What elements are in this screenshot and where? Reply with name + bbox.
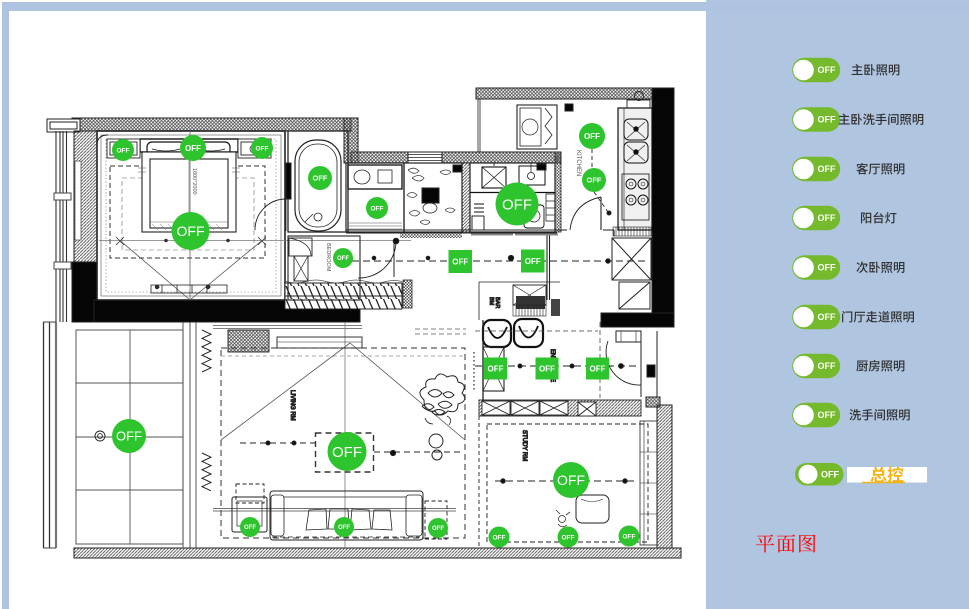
svg-text:OFF: OFF [562, 534, 575, 541]
svg-text:OFF: OFF [818, 361, 836, 371]
svg-text:OFF: OFF [539, 364, 555, 373]
svg-text:STUDY RM: STUDY RM [521, 430, 527, 461]
svg-text:OFF: OFF [177, 223, 205, 239]
svg-text:OFF: OFF [525, 257, 541, 266]
svg-text:OFF: OFF [818, 410, 836, 420]
svg-text:OFF: OFF [590, 364, 606, 373]
svg-text:OFF: OFF [244, 525, 256, 531]
svg-text:OFF: OFF [371, 205, 384, 212]
svg-text:OFF: OFF [818, 263, 836, 273]
svg-text:OFF: OFF [432, 526, 444, 532]
svg-text:OFF: OFF [557, 472, 585, 488]
svg-text:OFF: OFF [117, 147, 130, 154]
svg-text:BEDROOM: BEDROOM [325, 243, 331, 272]
svg-text:OFF: OFF [338, 525, 350, 531]
svg-text:OFF: OFF [587, 176, 602, 185]
svg-text:OFF: OFF [818, 65, 836, 75]
svg-text:OFF: OFF [818, 164, 836, 174]
svg-text:OFF: OFF [256, 145, 269, 152]
svg-text:OFF: OFF [818, 312, 836, 322]
svg-text:OFF: OFF [116, 429, 142, 444]
svg-text:OFF: OFF [313, 174, 328, 183]
svg-text:OFF: OFF [818, 213, 836, 223]
svg-text:OFF: OFF [332, 444, 362, 461]
svg-text:OFF: OFF [337, 256, 349, 262]
svg-text:OFF: OFF [584, 132, 600, 141]
svg-text:LIVING RM: LIVING RM [289, 390, 295, 421]
svg-text:KITCHEN: KITCHEN [575, 150, 581, 176]
svg-text:OFF: OFF [452, 257, 468, 266]
svg-text:OFF: OFF [623, 533, 636, 540]
svg-text:OFF: OFF [818, 115, 836, 125]
svg-text:1800*2000: 1800*2000 [191, 168, 197, 195]
svg-text:OFF: OFF [488, 364, 504, 373]
svg-text:OFF: OFF [185, 144, 201, 153]
svg-text:BM: BM [488, 297, 494, 306]
svg-text:OFF: OFF [502, 196, 532, 213]
svg-text:OFF: OFF [821, 470, 839, 480]
svg-text:OFF: OFF [493, 534, 506, 541]
